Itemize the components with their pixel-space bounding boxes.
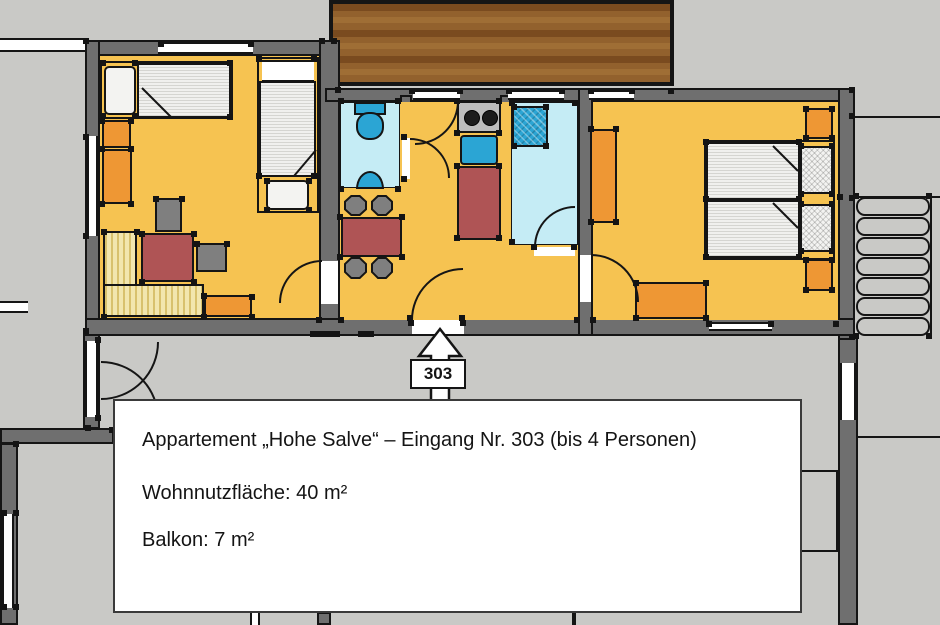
- corner-tick: [134, 229, 140, 235]
- corner-tick: [249, 314, 255, 320]
- corner-tick: [201, 293, 207, 299]
- corner-tick: [249, 294, 255, 300]
- corner-tick: [829, 257, 835, 263]
- info-living-area: Wohnnutzfläche: 40 m²: [142, 482, 347, 505]
- corner-tick: [829, 143, 835, 149]
- corner-tick: [409, 88, 415, 94]
- entrance-number-label: 303: [410, 359, 466, 389]
- corner-tick: [83, 38, 89, 44]
- corner-tick: [837, 194, 843, 200]
- corner-tick: [829, 201, 835, 207]
- corner-tick: [338, 186, 344, 192]
- corner-tick: [559, 88, 565, 94]
- corner-tick: [256, 173, 262, 179]
- corner-tick: [335, 87, 341, 93]
- corner-tick: [496, 235, 502, 241]
- corner-tick: [829, 106, 835, 112]
- corner-tick: [401, 134, 407, 140]
- corner-tick: [338, 317, 344, 323]
- corner-tick: [590, 317, 596, 323]
- corner-tick: [926, 193, 932, 199]
- corner-tick: [496, 130, 502, 136]
- corner-tick: [264, 178, 270, 184]
- corner-tick: [319, 38, 325, 44]
- corner-tick: [543, 143, 549, 149]
- corner-tick: [128, 118, 134, 124]
- corner-tick: [796, 254, 802, 260]
- corner-tick: [803, 106, 809, 112]
- corner-tick: [132, 60, 138, 66]
- corner-tick: [588, 126, 594, 132]
- corner-tick: [798, 201, 804, 207]
- corner-tick: [311, 56, 317, 62]
- info-title: Appartement „Hohe Salve“ – Eingang Nr. 3…: [142, 429, 697, 452]
- corner-tick: [338, 98, 344, 104]
- corner-tick: [633, 315, 639, 321]
- corner-tick: [399, 254, 405, 260]
- corner-tick: [706, 321, 712, 327]
- corner-tick: [454, 163, 460, 169]
- corner-tick: [407, 315, 413, 321]
- corner-tick: [83, 134, 89, 140]
- corner-tick: [264, 207, 270, 213]
- corner-tick: [191, 279, 197, 285]
- corner-tick: [829, 248, 835, 254]
- corner-tick: [395, 186, 401, 192]
- corner-tick: [401, 176, 407, 182]
- corner-tick: [227, 114, 233, 120]
- corner-tick: [798, 248, 804, 254]
- corner-tick: [331, 38, 337, 44]
- corner-tick: [316, 317, 322, 323]
- corner-tick: [703, 139, 709, 145]
- corner-tick: [153, 196, 159, 202]
- corner-tick: [926, 333, 932, 339]
- corner-tick: [99, 118, 105, 124]
- corner-tick: [13, 604, 19, 610]
- corner-tick: [201, 314, 207, 320]
- corner-tick: [13, 510, 19, 516]
- corner-tick: [306, 207, 312, 213]
- corner-tick: [337, 254, 343, 260]
- corner-tick: [853, 193, 859, 199]
- corner-tick: [101, 314, 107, 320]
- corner-tick: [803, 257, 809, 263]
- corner-tick: [256, 56, 262, 62]
- corner-tick: [506, 88, 512, 94]
- corner-tick: [574, 317, 580, 323]
- corner-tick: [668, 88, 674, 94]
- corner-tick: [1, 604, 7, 610]
- corner-tick: [191, 231, 197, 237]
- floor-plan: 303 Appartement „Hohe Salve“ – Eingang N…: [0, 0, 940, 625]
- info-balcony-area: Balkon: 7 m²: [142, 529, 254, 552]
- corner-tick: [139, 279, 145, 285]
- corner-tick: [588, 219, 594, 225]
- corner-tick: [633, 280, 639, 286]
- corner-tick: [798, 143, 804, 149]
- corner-tick: [158, 41, 164, 47]
- corner-tick: [543, 104, 549, 110]
- corner-tick: [571, 244, 577, 250]
- corner-tick: [496, 163, 502, 169]
- corner-tick: [629, 88, 635, 94]
- corner-tick: [227, 60, 233, 66]
- corner-tick: [798, 191, 804, 197]
- corner-tick: [179, 196, 185, 202]
- corner-tick: [613, 126, 619, 132]
- corner-tick: [454, 235, 460, 241]
- entrance-number-text: 303: [424, 364, 452, 383]
- corner-tick: [459, 315, 465, 321]
- corner-tick: [511, 104, 517, 110]
- corner-tick: [95, 337, 101, 343]
- corner-tick: [101, 229, 107, 235]
- corner-tick: [457, 88, 463, 94]
- corner-tick: [194, 241, 200, 247]
- corner-tick: [85, 425, 91, 431]
- corner-tick: [703, 315, 709, 321]
- corner-tick: [803, 287, 809, 293]
- corner-tick: [224, 241, 230, 247]
- corner-tick: [703, 254, 709, 260]
- corner-tick: [99, 146, 105, 152]
- corner-tick: [588, 88, 594, 94]
- info-box: Appartement „Hohe Salve“ – Eingang Nr. 3…: [113, 399, 802, 613]
- corner-tick: [395, 98, 401, 104]
- corner-tick: [703, 196, 709, 202]
- corner-tick: [511, 143, 517, 149]
- corner-tick: [853, 333, 859, 339]
- corner-tick: [829, 191, 835, 197]
- corner-tick: [572, 100, 578, 106]
- corner-tick: [83, 328, 89, 334]
- corner-tick: [768, 321, 774, 327]
- corner-tick: [496, 98, 502, 104]
- corner-tick: [509, 239, 515, 245]
- corner-tick: [99, 201, 105, 207]
- corner-tick: [829, 287, 835, 293]
- corner-tick: [100, 60, 106, 66]
- corner-tick: [13, 441, 19, 447]
- corner-tick: [829, 135, 835, 141]
- corner-tick: [803, 135, 809, 141]
- corner-tick: [337, 214, 343, 220]
- corner-tick: [83, 233, 89, 239]
- corner-tick: [1, 510, 7, 516]
- corner-tick: [128, 201, 134, 207]
- corner-tick: [531, 244, 537, 250]
- corner-tick: [95, 415, 101, 421]
- corner-tick: [306, 178, 312, 184]
- corner-tick: [128, 146, 134, 152]
- corner-tick: [833, 321, 839, 327]
- corner-tick: [454, 130, 460, 136]
- corner-tick: [703, 280, 709, 286]
- corner-tick: [849, 87, 855, 93]
- corner-tick: [613, 219, 619, 225]
- corner-tick: [849, 113, 855, 119]
- corner-tick: [399, 214, 405, 220]
- corner-tick: [454, 98, 460, 104]
- corner-tick: [248, 41, 254, 47]
